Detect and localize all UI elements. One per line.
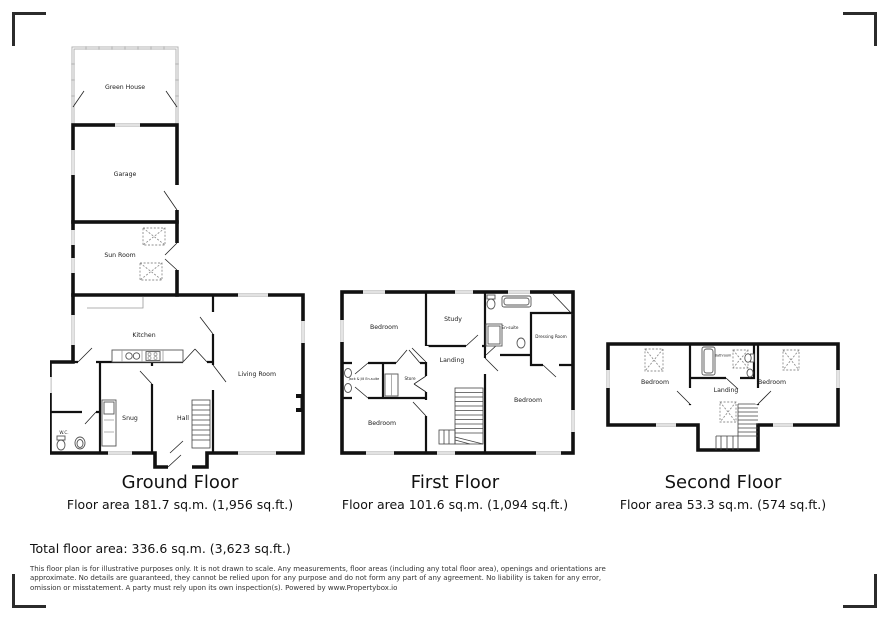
room-label-sun-room: Sun Room (104, 252, 135, 259)
room-label-bathroom: Bathroom (715, 354, 732, 358)
kitchen-counter-icon (87, 297, 183, 362)
room-label-study: Study (444, 316, 462, 323)
wardrobe-icon (385, 374, 398, 396)
cabinet-icon (102, 400, 116, 446)
corner-mark-top-left (12, 12, 46, 46)
ground-floor-area: Floor area 181.7 sq.m. (1,956 sq.ft.) (50, 497, 310, 512)
ground-floor-title: Ground Floor (50, 472, 310, 493)
stairs-icon (716, 408, 758, 450)
sink-icon (75, 437, 85, 449)
fireplace-icon (296, 394, 303, 412)
first-floor-caption: First Floor Floor area 101.6 sq.m. (1,09… (330, 472, 580, 512)
room-label-bedroom-left: Bedroom (641, 379, 669, 386)
room-label-en-suite: En-suite (501, 325, 518, 330)
toilet-icon (57, 436, 65, 450)
bathtub-icon (702, 347, 715, 375)
disclaimer-line-2: approximate. No details are guaranteed, … (30, 574, 606, 583)
room-label-wc: W.C. (59, 430, 68, 435)
first-floor-title: First Floor (330, 472, 580, 493)
floorplan-page: Green House Garage Sun Room Kitchen Livi… (0, 0, 886, 620)
toilet-icon (487, 295, 495, 309)
disclaimer: This floor plan is for illustrative purp… (30, 565, 606, 593)
second-floor-caption: Second Floor Floor area 53.3 sq.m. (574 … (598, 472, 848, 512)
room-label-jack-jill-en-suite: Jack & Jill En-suite (348, 377, 379, 381)
skylight-icon (140, 228, 165, 280)
corner-mark-top-right (843, 12, 877, 46)
second-walls (608, 344, 838, 450)
room-label-landing: Landing (440, 357, 465, 364)
sink-icon (747, 369, 753, 377)
room-label-bedroom-bottom-left: Bedroom (368, 420, 396, 427)
room-label-kitchen: Kitchen (132, 332, 155, 339)
sink-icon (517, 338, 525, 348)
ground-floor-caption: Ground Floor Floor area 181.7 sq.m. (1,9… (50, 472, 310, 512)
stairs-icon (439, 388, 483, 444)
shower-icon (486, 324, 502, 346)
toilet-icon (745, 354, 754, 362)
room-label-landing: Landing (714, 387, 739, 394)
room-label-hall: Hall (177, 415, 189, 422)
second-floor-plan: Bedroom Bathroom Landing Bedroom (606, 342, 842, 454)
room-label-green-house: Green House (105, 84, 145, 91)
disclaimer-line-3: omission or misstatement. A party must r… (30, 584, 606, 593)
room-label-bedroom-right: Bedroom (758, 379, 786, 386)
room-label-dressing-room: Dressing Room (535, 334, 567, 339)
room-label-snug: Snug (122, 415, 138, 422)
room-label-garage: Garage (114, 171, 137, 178)
ground-floor-plan: Green House Garage Sun Room Kitchen Livi… (50, 44, 310, 472)
room-label-living-room: Living Room (238, 371, 276, 378)
bathtub-icon (502, 296, 531, 307)
room-label-bedroom-right: Bedroom (514, 397, 542, 404)
second-floor-title: Second Floor (598, 472, 848, 493)
first-floor-plan: Bedroom Study En-suite Dressing Room Jac… (340, 288, 576, 456)
second-floor-area: Floor area 53.3 sq.m. (574 sq.ft.) (598, 497, 848, 512)
disclaimer-line-1: This floor plan is for illustrative purp… (30, 565, 606, 574)
total-floor-area: Total floor area: 336.6 sq.m. (3,623 sq.… (30, 541, 291, 556)
room-label-store: Store (404, 376, 415, 381)
room-label-bedroom-top-left: Bedroom (370, 324, 398, 331)
stairs-icon (192, 400, 210, 448)
corner-mark-bottom-right (843, 574, 877, 608)
first-floor-area: Floor area 101.6 sq.m. (1,094 sq.ft.) (330, 497, 580, 512)
